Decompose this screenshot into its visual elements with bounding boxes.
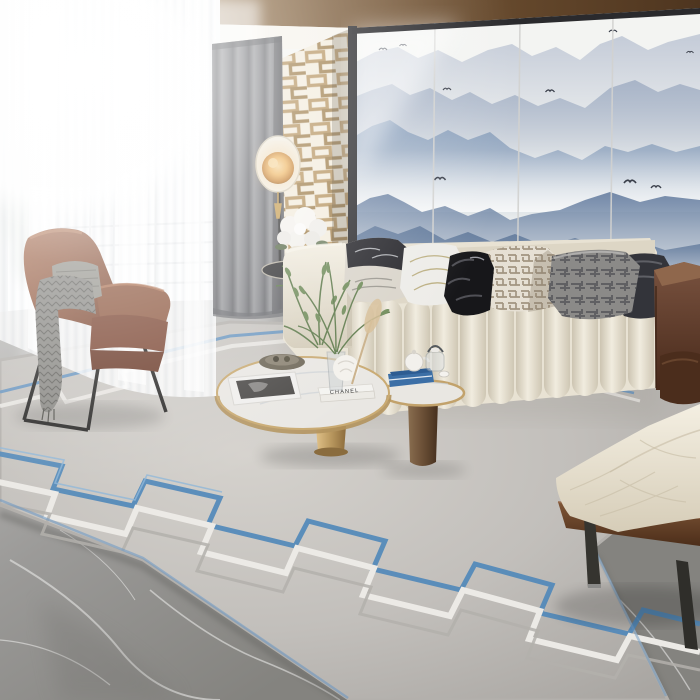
window-light-glare bbox=[0, 0, 700, 700]
scene-canvas: CHANEL bbox=[0, 0, 700, 700]
living-room-photo: CHANEL bbox=[0, 0, 700, 700]
